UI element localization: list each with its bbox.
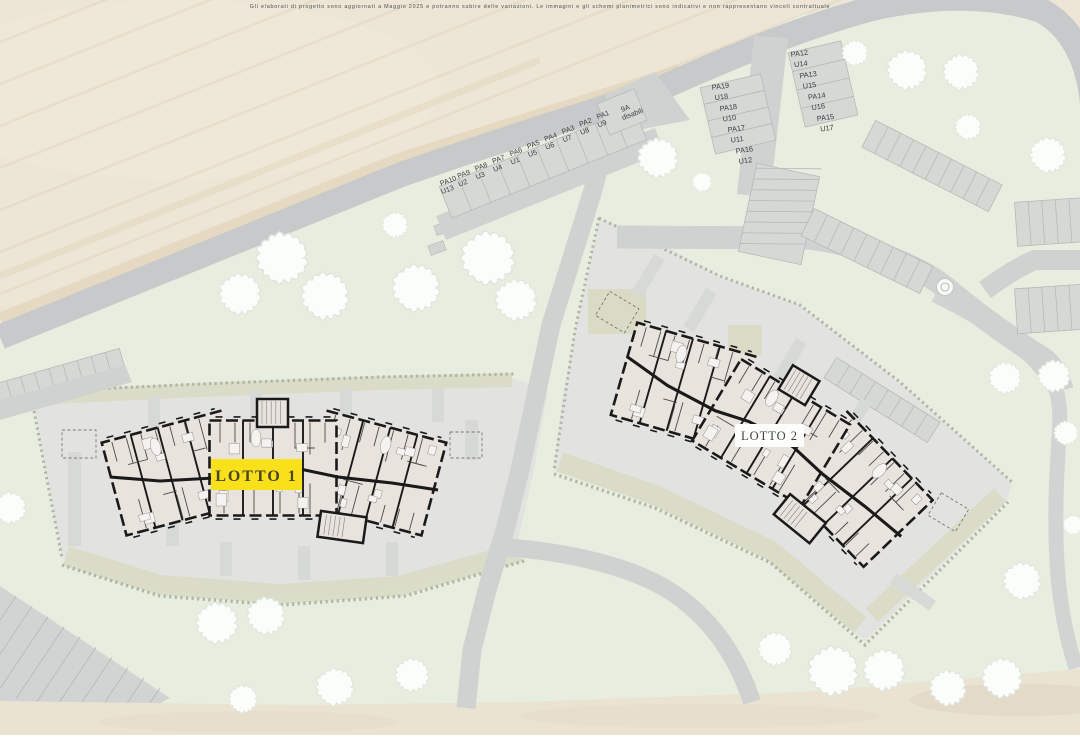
svg-text:U17: U17 <box>820 123 835 134</box>
svg-text:U11: U11 <box>730 134 744 145</box>
svg-text:U18: U18 <box>714 91 729 102</box>
svg-text:LOTTO 1: LOTTO 1 <box>215 468 298 485</box>
svg-text:U14: U14 <box>793 58 808 69</box>
svg-text:U12: U12 <box>738 155 753 166</box>
svg-text:LOTTO 2: LOTTO 2 <box>741 429 798 443</box>
svg-text:U10: U10 <box>722 113 737 124</box>
svg-text:U16: U16 <box>811 101 826 112</box>
svg-text:Gli elaborati di progetto sono: Gli elaborati di progetto sono aggiornat… <box>250 4 830 10</box>
svg-text:U15: U15 <box>802 80 817 91</box>
